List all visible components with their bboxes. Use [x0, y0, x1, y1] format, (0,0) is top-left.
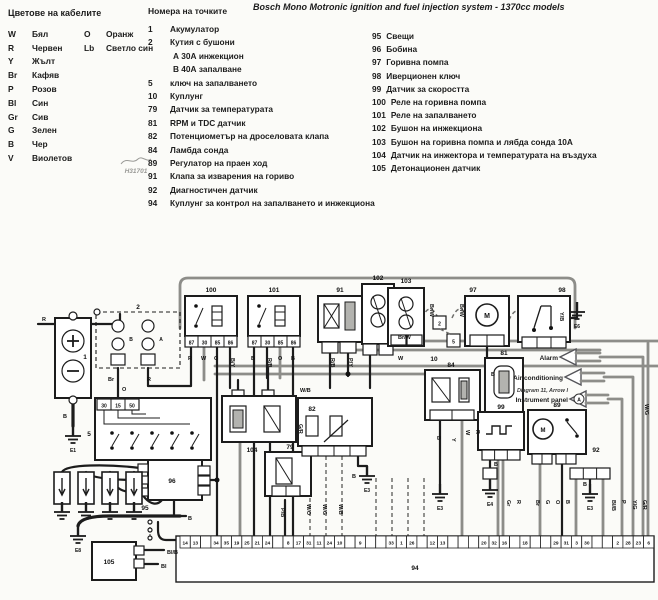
connector-pin-number: 31 [564, 541, 570, 547]
relay101-term-85: 85 [278, 341, 284, 347]
connector-pin-number: 9 [359, 541, 362, 547]
wire-color-row: BrКафяв [8, 68, 150, 82]
wire-label: R [515, 500, 521, 504]
ground-label: E1 [70, 448, 76, 454]
ground-symbol: E6 [569, 302, 585, 330]
ign-term-30: 30 [101, 404, 107, 410]
ground-symbol: E3 [582, 484, 598, 512]
wire-label: W [398, 356, 404, 362]
points-item: 102Бушон на инжекциона [372, 122, 658, 135]
wire-label: G [544, 500, 550, 504]
points-item: 81RPM и TDC датчик [148, 117, 372, 130]
fuse102-label: 102 [373, 275, 384, 282]
idle-regulator-89: 89 M [528, 402, 586, 464]
battery: 1 [55, 312, 91, 404]
wire-label: G/R [641, 500, 647, 510]
connector-pin-number: 24 [265, 541, 271, 547]
wire-label: O [554, 500, 560, 505]
points-item: 5ключ на запалването [148, 77, 372, 90]
wire-label: P/Y [347, 358, 353, 367]
connector-pin [417, 536, 427, 548]
wire-color-header: Цветове на кабелите [8, 8, 150, 18]
battery-label: 1 [83, 354, 87, 361]
connector-pin-number: 34 [213, 541, 219, 547]
connector-pin-number: 19 [234, 541, 240, 547]
wire-label: Br/W [398, 335, 412, 341]
wire-label: B [63, 414, 67, 420]
conn10-pin2: 2 [438, 322, 441, 328]
wire-label: Br [534, 500, 540, 507]
wire-label: W/O [305, 504, 311, 516]
wire-color-row: PРозов [8, 82, 150, 96]
connector-pin [510, 536, 520, 548]
wire-label: W/G [321, 504, 327, 515]
ground-label: E6 [574, 324, 580, 330]
relay101-term-87: 87 [252, 341, 258, 347]
connector-pin-number: 2 [616, 541, 619, 547]
conn10-pin5: 5 [452, 340, 455, 346]
connector-pin-number: 28 [625, 541, 631, 547]
connector-pin-number: 33 [388, 541, 394, 547]
instrument-panel-label: Instrument panel [516, 397, 569, 404]
diagram-note: Diagram 11, Arrow I [517, 388, 569, 394]
relay100-term-30: 30 [202, 341, 208, 347]
connector-pin-number: 18 [522, 541, 528, 547]
wire-label: W/B [300, 388, 311, 394]
connector-pin [458, 536, 468, 548]
wire-label: B [291, 356, 295, 362]
points-item: 10Куплунг [148, 90, 372, 103]
arrow-a-letter: A [577, 398, 581, 404]
connector-pin [376, 536, 386, 548]
points-item: 101Реле на запалването [372, 109, 658, 122]
connector-pin [602, 536, 612, 548]
wire-label: P [620, 500, 626, 504]
ignition-coil-96: 96 [138, 460, 210, 500]
points-item: 96Бобина [372, 43, 658, 56]
injector-temp-104: 104 [222, 390, 296, 454]
ground-label: E8 [75, 548, 81, 554]
points-item: 2Кутия с бушони [148, 36, 372, 49]
wire-label: B [583, 482, 587, 488]
points-rows-left: 1Акумулатор2Кутия с бушониА 30А инжекцио… [148, 23, 372, 211]
ground-label: E3 [364, 488, 370, 494]
points-item: В 40А запалване [148, 63, 372, 76]
wire-label: R/B [266, 358, 272, 368]
connector-pin [468, 536, 478, 548]
points-item: 98Иверционен ключ [372, 70, 658, 83]
connector-pin-number: 29 [553, 541, 559, 547]
connector-pin-number: 8 [287, 541, 290, 547]
relay-101: 87 30 85 86 101 [248, 287, 300, 347]
knock-sensor-105: 105 [92, 520, 152, 580]
connector-pin-number: 13 [440, 541, 446, 547]
schematic-svg: 1 2 B A 30 15 50 [0, 228, 658, 600]
connector-pin-number: 14 [182, 541, 188, 547]
wire-label: R [147, 377, 151, 383]
pump97-label: 97 [469, 287, 477, 294]
wire-label: W/B [337, 504, 343, 515]
wire-label: R [188, 356, 192, 362]
connector-pin-number: 21 [255, 541, 261, 547]
fuse-a-label: A [159, 337, 163, 343]
wire-label: P/B [279, 508, 285, 517]
inertia98-label: 98 [558, 287, 566, 294]
relay101-term-86: 86 [291, 341, 297, 347]
wire-label: O [278, 356, 283, 362]
wire-label: O [214, 356, 219, 362]
connector-pin-number: 12 [430, 541, 436, 547]
fuse103-label: 103 [401, 278, 412, 285]
sensor104-label: 104 [247, 447, 258, 454]
speed99-label: 99 [497, 404, 505, 411]
wire-label: B [494, 462, 498, 468]
ground-symbol: E3 [432, 484, 448, 512]
connector-pin [201, 536, 211, 548]
valve91-label: 91 [336, 287, 344, 294]
connector-pin [448, 536, 458, 548]
connector-pin-number: 6 [647, 541, 650, 547]
connector-pin-number: 1 [400, 541, 403, 547]
wire-color-row: GrСив [8, 110, 150, 124]
ignition-label: 5 [87, 431, 91, 438]
ign-term-15: 15 [115, 404, 121, 410]
ground-label: E3 [587, 506, 593, 512]
points-item: 99Датчик за скоростта [372, 83, 658, 96]
connector-pin [541, 536, 551, 548]
connector-pin-number: 23 [636, 541, 642, 547]
knock105-label: 105 [104, 559, 115, 566]
wire-label: B [564, 500, 570, 504]
connector-pin-number: 35 [224, 541, 230, 547]
wire-label: R [474, 430, 480, 434]
relay101-term-30: 30 [265, 341, 271, 347]
wire-label: B [188, 516, 192, 522]
connector-pin-number: 11 [317, 541, 322, 547]
connector-pin-number: 25 [244, 541, 250, 547]
points-item: 100Реле на горивна помпа [372, 96, 658, 109]
wire-label: Y/G [631, 500, 637, 509]
relay100-term-87: 87 [189, 341, 195, 347]
connector-10: 2 5 10 [430, 316, 460, 363]
points-item: 84Ламбда сонда [148, 144, 372, 157]
wire-label: W [201, 356, 207, 362]
ac-label: Air conditioning [513, 375, 563, 382]
wire-color-row: GЗелен [8, 124, 150, 138]
wire-color-row: YЖълт [8, 55, 150, 69]
connector-pin [273, 536, 283, 548]
fuse-box-2: 2 B A [94, 304, 180, 368]
wire-label: Y [450, 438, 456, 442]
fuel-pump-97: M 97 [465, 287, 509, 346]
ac-arrow-icon [565, 369, 581, 385]
lambda84-label: 84 [447, 362, 455, 369]
lambda-sensor-84: 84 [425, 362, 480, 420]
throttle82-label: 82 [308, 406, 316, 413]
wire-label: B [491, 372, 495, 378]
wire-label: O [122, 387, 127, 393]
wire-label: Bl/B [167, 550, 178, 556]
wire-label: G/R [297, 424, 303, 434]
connector-pin-number: 32 [491, 541, 497, 547]
wire-label: Br/W [428, 304, 434, 318]
wire-label: Bl/B [610, 500, 616, 511]
wire-color-row: RЧервенLbСветло син [8, 41, 150, 55]
connector-pin-number: 10 [337, 541, 343, 547]
ign-term-50: 50 [129, 404, 135, 410]
points-list-left: Номера на точките 1Акумулатор2Кутия с бу… [148, 6, 372, 211]
ecu-connector-94: 1413343519252124817311124109331261213203… [176, 536, 654, 582]
connector-pin-number: 17 [296, 541, 302, 547]
connector-pin-number: 30 [584, 541, 590, 547]
points-item: 1Акумулатор [148, 23, 372, 36]
wire-color-row: BЧер [8, 137, 150, 151]
ground-symbol: E4 [482, 480, 498, 508]
points-rows-right: 95Свещи96Бобина97Горивна помпа98Иверцион… [372, 30, 658, 175]
points-item: 104Датчик на инжектора и температурата н… [372, 149, 658, 162]
wire-label: R [42, 317, 46, 323]
wire-label: Br [108, 377, 115, 383]
connector-pin-number: 13 [193, 541, 199, 547]
plugs95-label: 95 [141, 505, 149, 512]
temp79-label: 79 [286, 444, 294, 451]
points-item: А 30А инжекцион [148, 50, 372, 63]
wire-label: Br/W [458, 304, 464, 318]
connector-pin-number: 20 [481, 541, 487, 547]
relay101-label: 101 [269, 287, 280, 294]
relay100-term-86: 86 [228, 341, 234, 347]
arrow-callouts: Alarm Air conditioning Diagram 11, Arrow… [513, 349, 608, 407]
points-item: 97Горивна помпа [372, 56, 658, 69]
connector-pin [345, 536, 355, 548]
wire-color-legend: Цветове на кабелите WБялOОранжRЧервенLbС… [8, 8, 150, 165]
ignition-switch: 30 15 50 5 [87, 398, 211, 460]
throttle-pot-82: 82 [298, 398, 372, 456]
points-item: 103Бушон на горивна помпа и лябда сонда … [372, 136, 658, 149]
wire-label: Bl [161, 564, 167, 570]
ground-label: E3 [437, 506, 443, 512]
connector-pin-number: 26 [409, 541, 415, 547]
wire-label: B [435, 436, 441, 440]
idle-motor-m: M [541, 428, 546, 434]
wire-label: B [352, 474, 356, 480]
wire-label: B [251, 356, 255, 362]
wire-color-row: BlСин [8, 96, 150, 110]
page-title: Bosch Mono Motronic ignition and fuel in… [253, 2, 655, 12]
points-item: 79Датчик за температурата [148, 103, 372, 116]
alarm-label: Alarm [540, 355, 559, 362]
pump-motor-m: M [484, 313, 490, 320]
points-item: 82Потенциометър на дроселовата клапа [148, 130, 372, 143]
wire-label: Gr [505, 500, 511, 507]
points-item: 94Куплунг за контрол на запалването и ин… [148, 197, 372, 210]
relay100-term-85: 85 [215, 341, 221, 347]
wire-color-rows: WБялOОранжRЧервенLbСветло синYЖълтBrКафя… [8, 27, 150, 165]
fuse-box-label: 2 [136, 304, 140, 311]
wire-label: W [464, 430, 470, 436]
points-item: 89Регулатор на праен ход [148, 157, 372, 170]
wire-label: W/G [643, 404, 649, 415]
diag92-label: 92 [592, 447, 600, 454]
points-item: 92Диагностичен датчик [148, 184, 372, 197]
points-item: 91Клапа за изварения на гориво [148, 170, 372, 183]
connector-pin [592, 536, 602, 548]
connector-pin-number: 16 [502, 541, 508, 547]
ground-symbol: E1 [65, 426, 81, 454]
speed-sensor-99: 99 [478, 404, 524, 479]
ground-symbol: E3 [359, 466, 375, 494]
points-item: 95Свещи [372, 30, 658, 43]
connector94-label: 94 [411, 565, 419, 572]
relay100-label: 100 [206, 287, 217, 294]
connector-pins: 1413343519252124817311124109331261213203… [180, 536, 654, 548]
points-list-right: 95Свещи96Бобина97Горивна помпа98Иверцион… [372, 30, 658, 175]
ground-symbol: E8 [70, 526, 86, 554]
points-item: 105Детонационен датчик [372, 162, 658, 175]
conn10-label: 10 [430, 356, 438, 363]
connector-pin [365, 536, 375, 548]
purge-valve-91: 91 [318, 287, 362, 353]
wire-label: Y/B [558, 312, 564, 321]
ground-label: E4 [487, 502, 493, 508]
fuse-b-label: B [129, 337, 133, 343]
wire-label: B/Y [229, 358, 235, 368]
connector-pin-number: 3 [575, 541, 578, 547]
rpm81-label: 81 [500, 350, 508, 357]
connector-pin-number: 24 [327, 541, 333, 547]
coil96-label: 96 [168, 478, 176, 485]
relay-100: 87 30 85 86 100 [185, 287, 237, 347]
wire-color-row: WБялOОранж [8, 27, 150, 41]
wiring-diagram-page: Цветове на кабелите WБялOОранжRЧервенLbС… [0, 0, 658, 600]
connector-pin-number: 31 [306, 541, 312, 547]
connector-pin [530, 536, 540, 548]
wire-label: R/B [329, 358, 335, 368]
